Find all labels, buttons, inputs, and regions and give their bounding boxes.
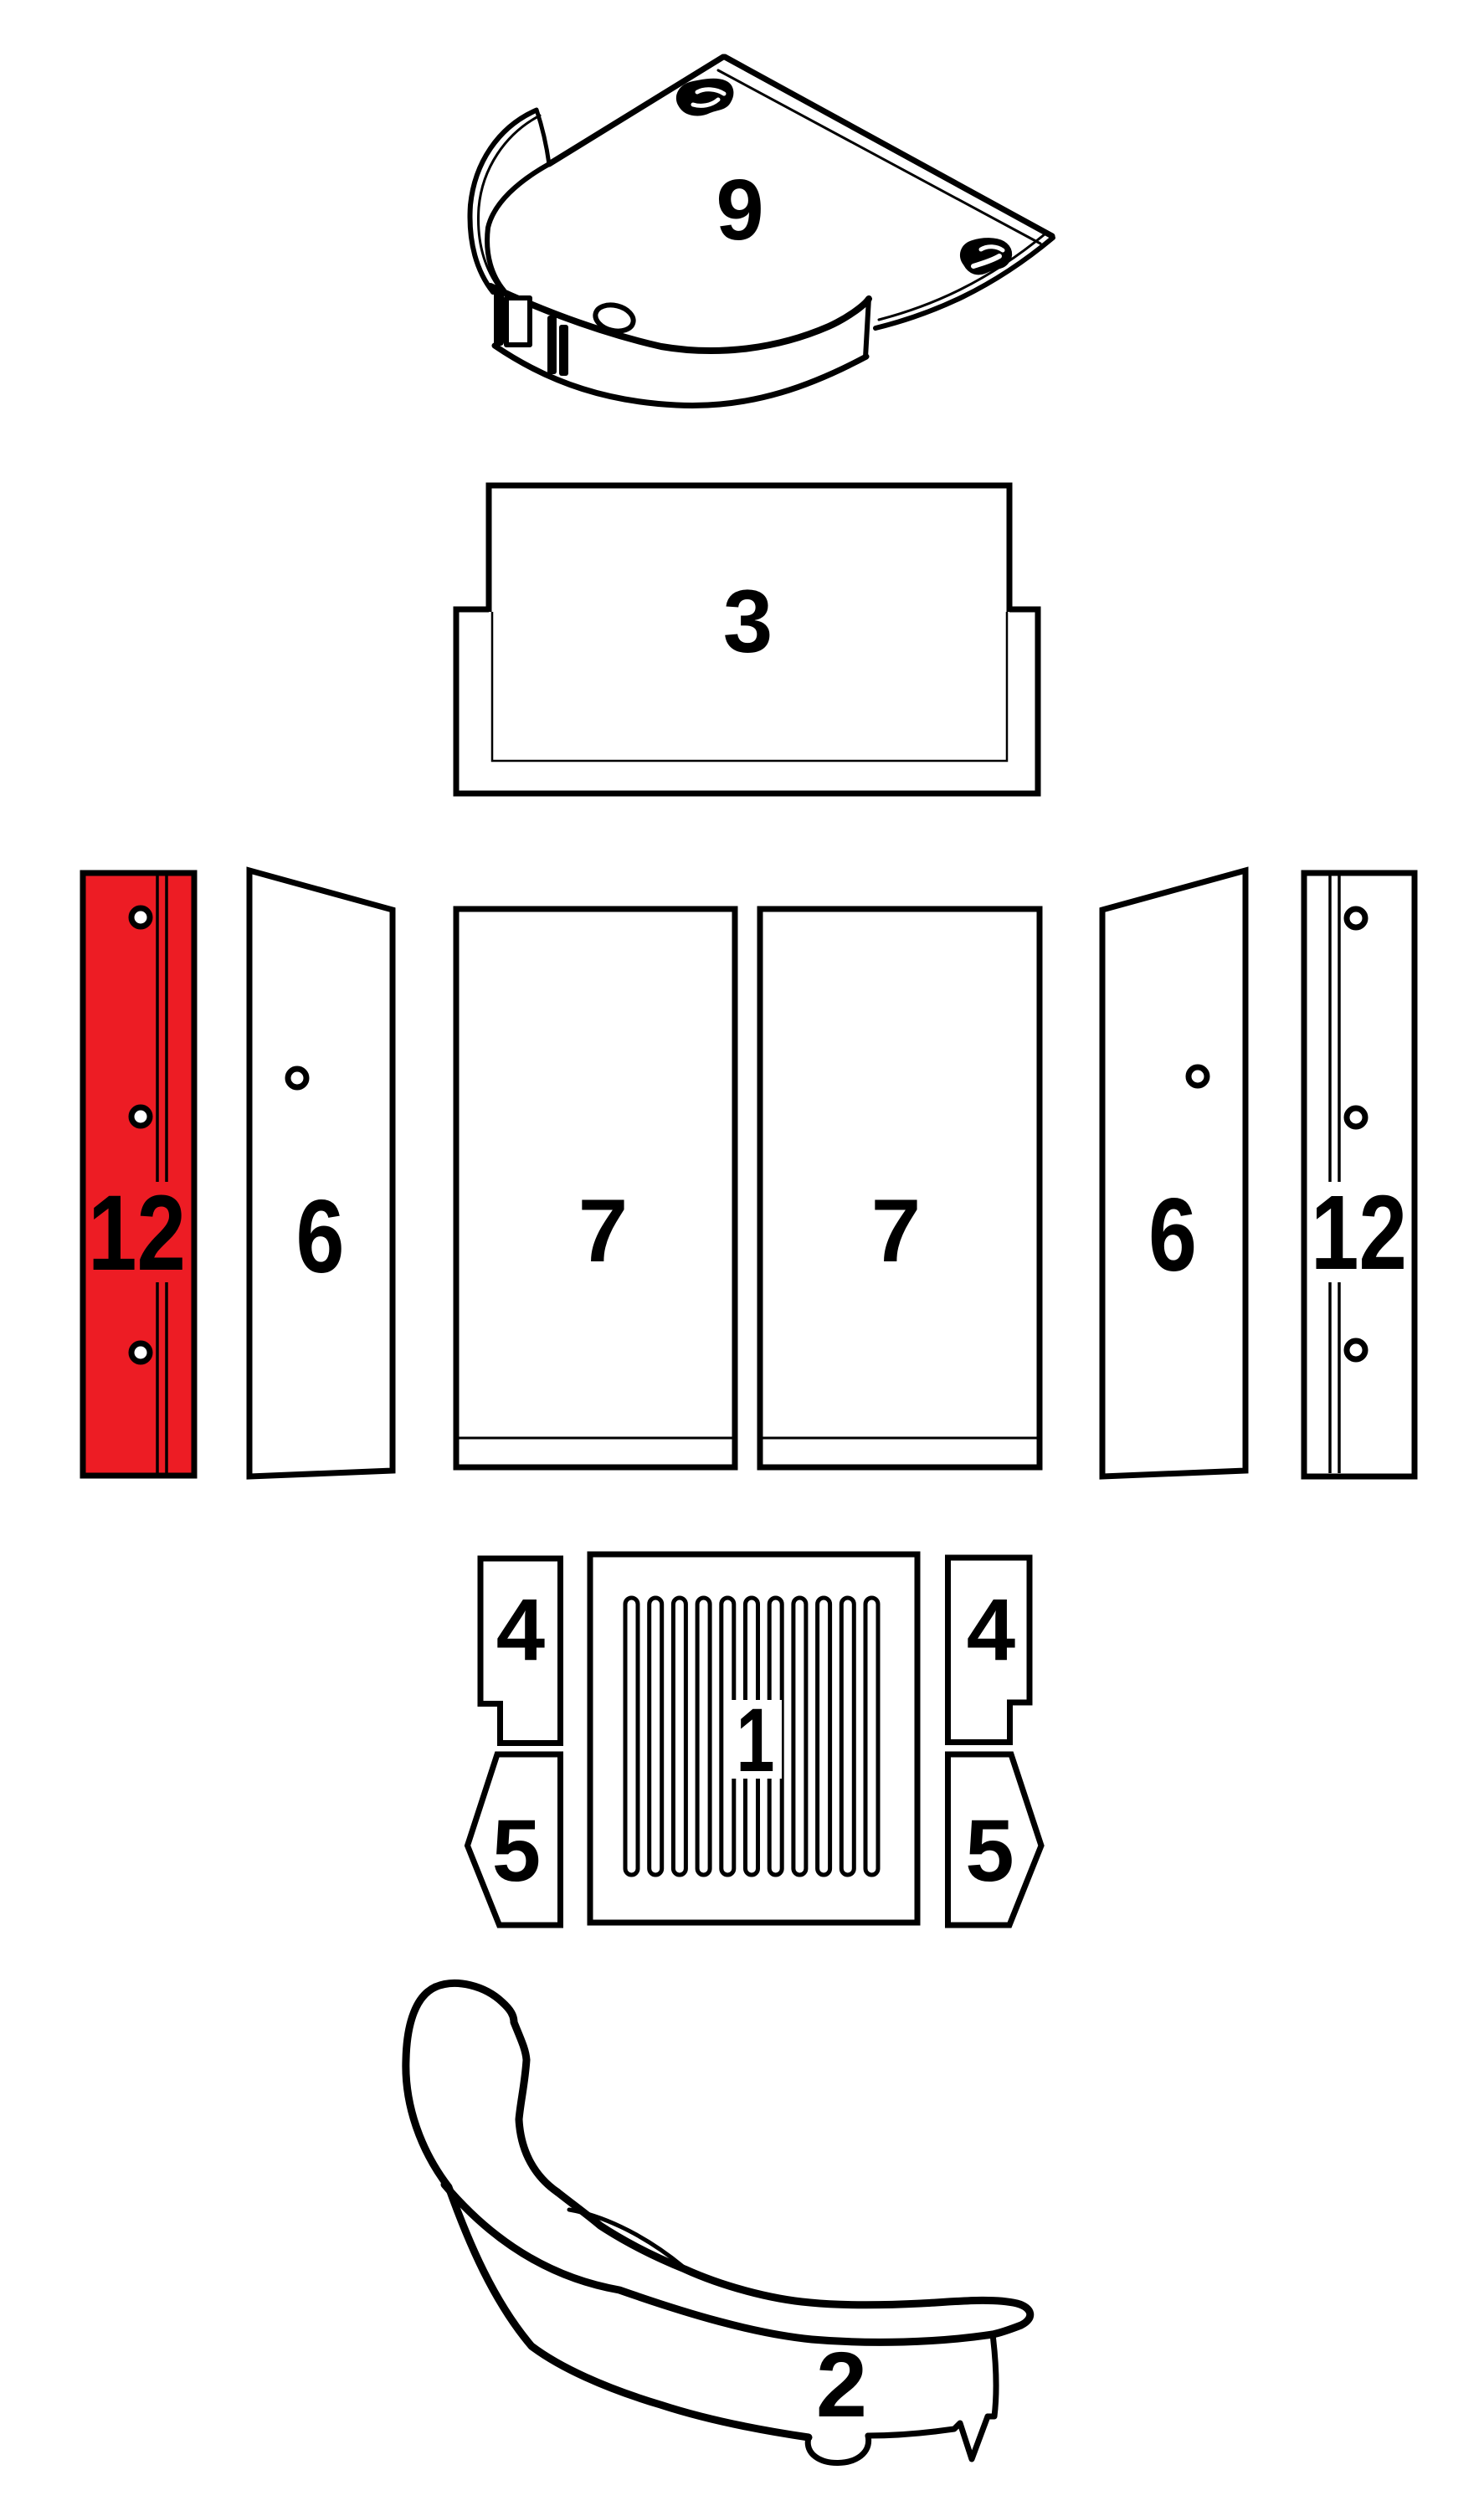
- svg-text:5: 5: [965, 1802, 1014, 1900]
- svg-text:3: 3: [723, 571, 773, 671]
- svg-text:6: 6: [1148, 1178, 1197, 1293]
- svg-text:4: 4: [496, 1581, 545, 1679]
- svg-text:7: 7: [578, 1180, 629, 1281]
- svg-text:2: 2: [816, 2334, 867, 2437]
- svg-text:7: 7: [871, 1180, 922, 1281]
- svg-text:12: 12: [88, 1173, 186, 1293]
- svg-text:12: 12: [1311, 1173, 1407, 1291]
- svg-text:6: 6: [296, 1179, 345, 1295]
- svg-text:5: 5: [492, 1802, 541, 1900]
- svg-text:4: 4: [967, 1581, 1015, 1679]
- svg-text:1: 1: [737, 1689, 775, 1790]
- svg-text:9: 9: [716, 162, 763, 258]
